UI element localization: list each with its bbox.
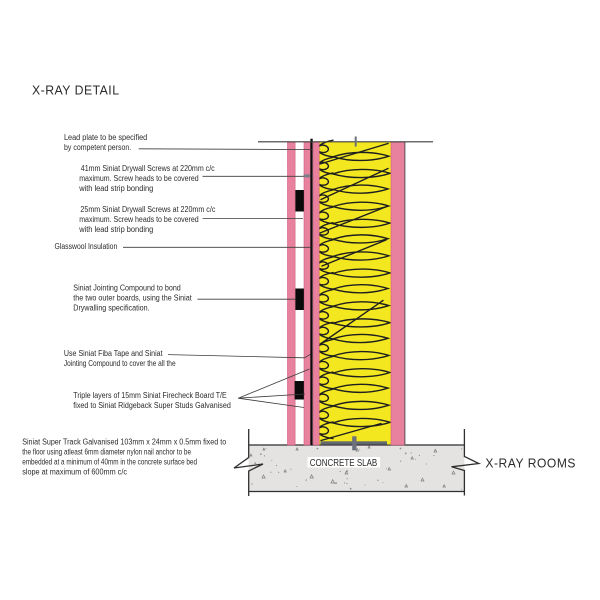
svg-text:Siniat Jointing Compound to b: Siniat Jointing Compound to bond (73, 284, 181, 293)
svg-text:fixed to Siniat Ridgeback Sup: fixed to Siniat Ridgeback Super Studs Ga… (73, 401, 231, 410)
svg-text:X-RAY DETAIL: X-RAY DETAIL (32, 83, 120, 98)
svg-text:25mm Siniat Drywall Screws at: 25mm Siniat Drywall Screws at 220mm c/c (80, 205, 215, 214)
svg-text:embedded at a minimum of 40mm: embedded at a minimum of 40mm in the con… (22, 457, 197, 466)
svg-text:Use Siniat Fiba Tape and Sini: Use Siniat Fiba Tape and Siniat (64, 349, 163, 358)
svg-text:CONCRETE SLAB: CONCRETE SLAB (310, 458, 378, 469)
svg-text:maximum. Screw heads to be cov: maximum. Screw heads to be covered (79, 174, 198, 183)
svg-text:41mm Siniat Drywall Screws at: 41mm Siniat Drywall Screws at 220mm c/c (81, 164, 215, 173)
svg-text:Drywalling specification.: Drywalling specification. (73, 304, 149, 313)
svg-text:the two outer boards, using th: the two outer boards, using the Siniat (73, 294, 192, 303)
svg-text:slope at maximum of 600mm c/c: slope at maximum of 600mm c/c (22, 467, 127, 476)
svg-text:with lead strip bonding: with lead strip bonding (78, 225, 153, 234)
svg-text:X-RAY ROOMS: X-RAY ROOMS (485, 456, 576, 471)
svg-text:the floor using atleast 6mm di: the floor using atleast 6mm diameter nyl… (22, 447, 191, 456)
svg-text:Lead plate to be specified: Lead plate to be specified (64, 133, 147, 142)
svg-text:maximum. Screw heads to be cov: maximum. Screw heads to be covered (79, 215, 198, 224)
svg-text:Glasswool Insulation: Glasswool Insulation (55, 242, 118, 251)
svg-text:by competent person.: by competent person. (64, 143, 131, 152)
svg-text:with lead strip bonding: with lead strip bonding (78, 184, 153, 193)
svg-text:Triple layers of 15mm Siniat: Triple layers of 15mm Siniat Firecheck B… (73, 391, 226, 400)
svg-text:Jointing Compound to cover the: Jointing Compound to cover the all the (64, 359, 176, 368)
svg-text:Siniat Super Track Galvanised: Siniat Super Track Galvanised 103mm x 24… (22, 437, 227, 446)
